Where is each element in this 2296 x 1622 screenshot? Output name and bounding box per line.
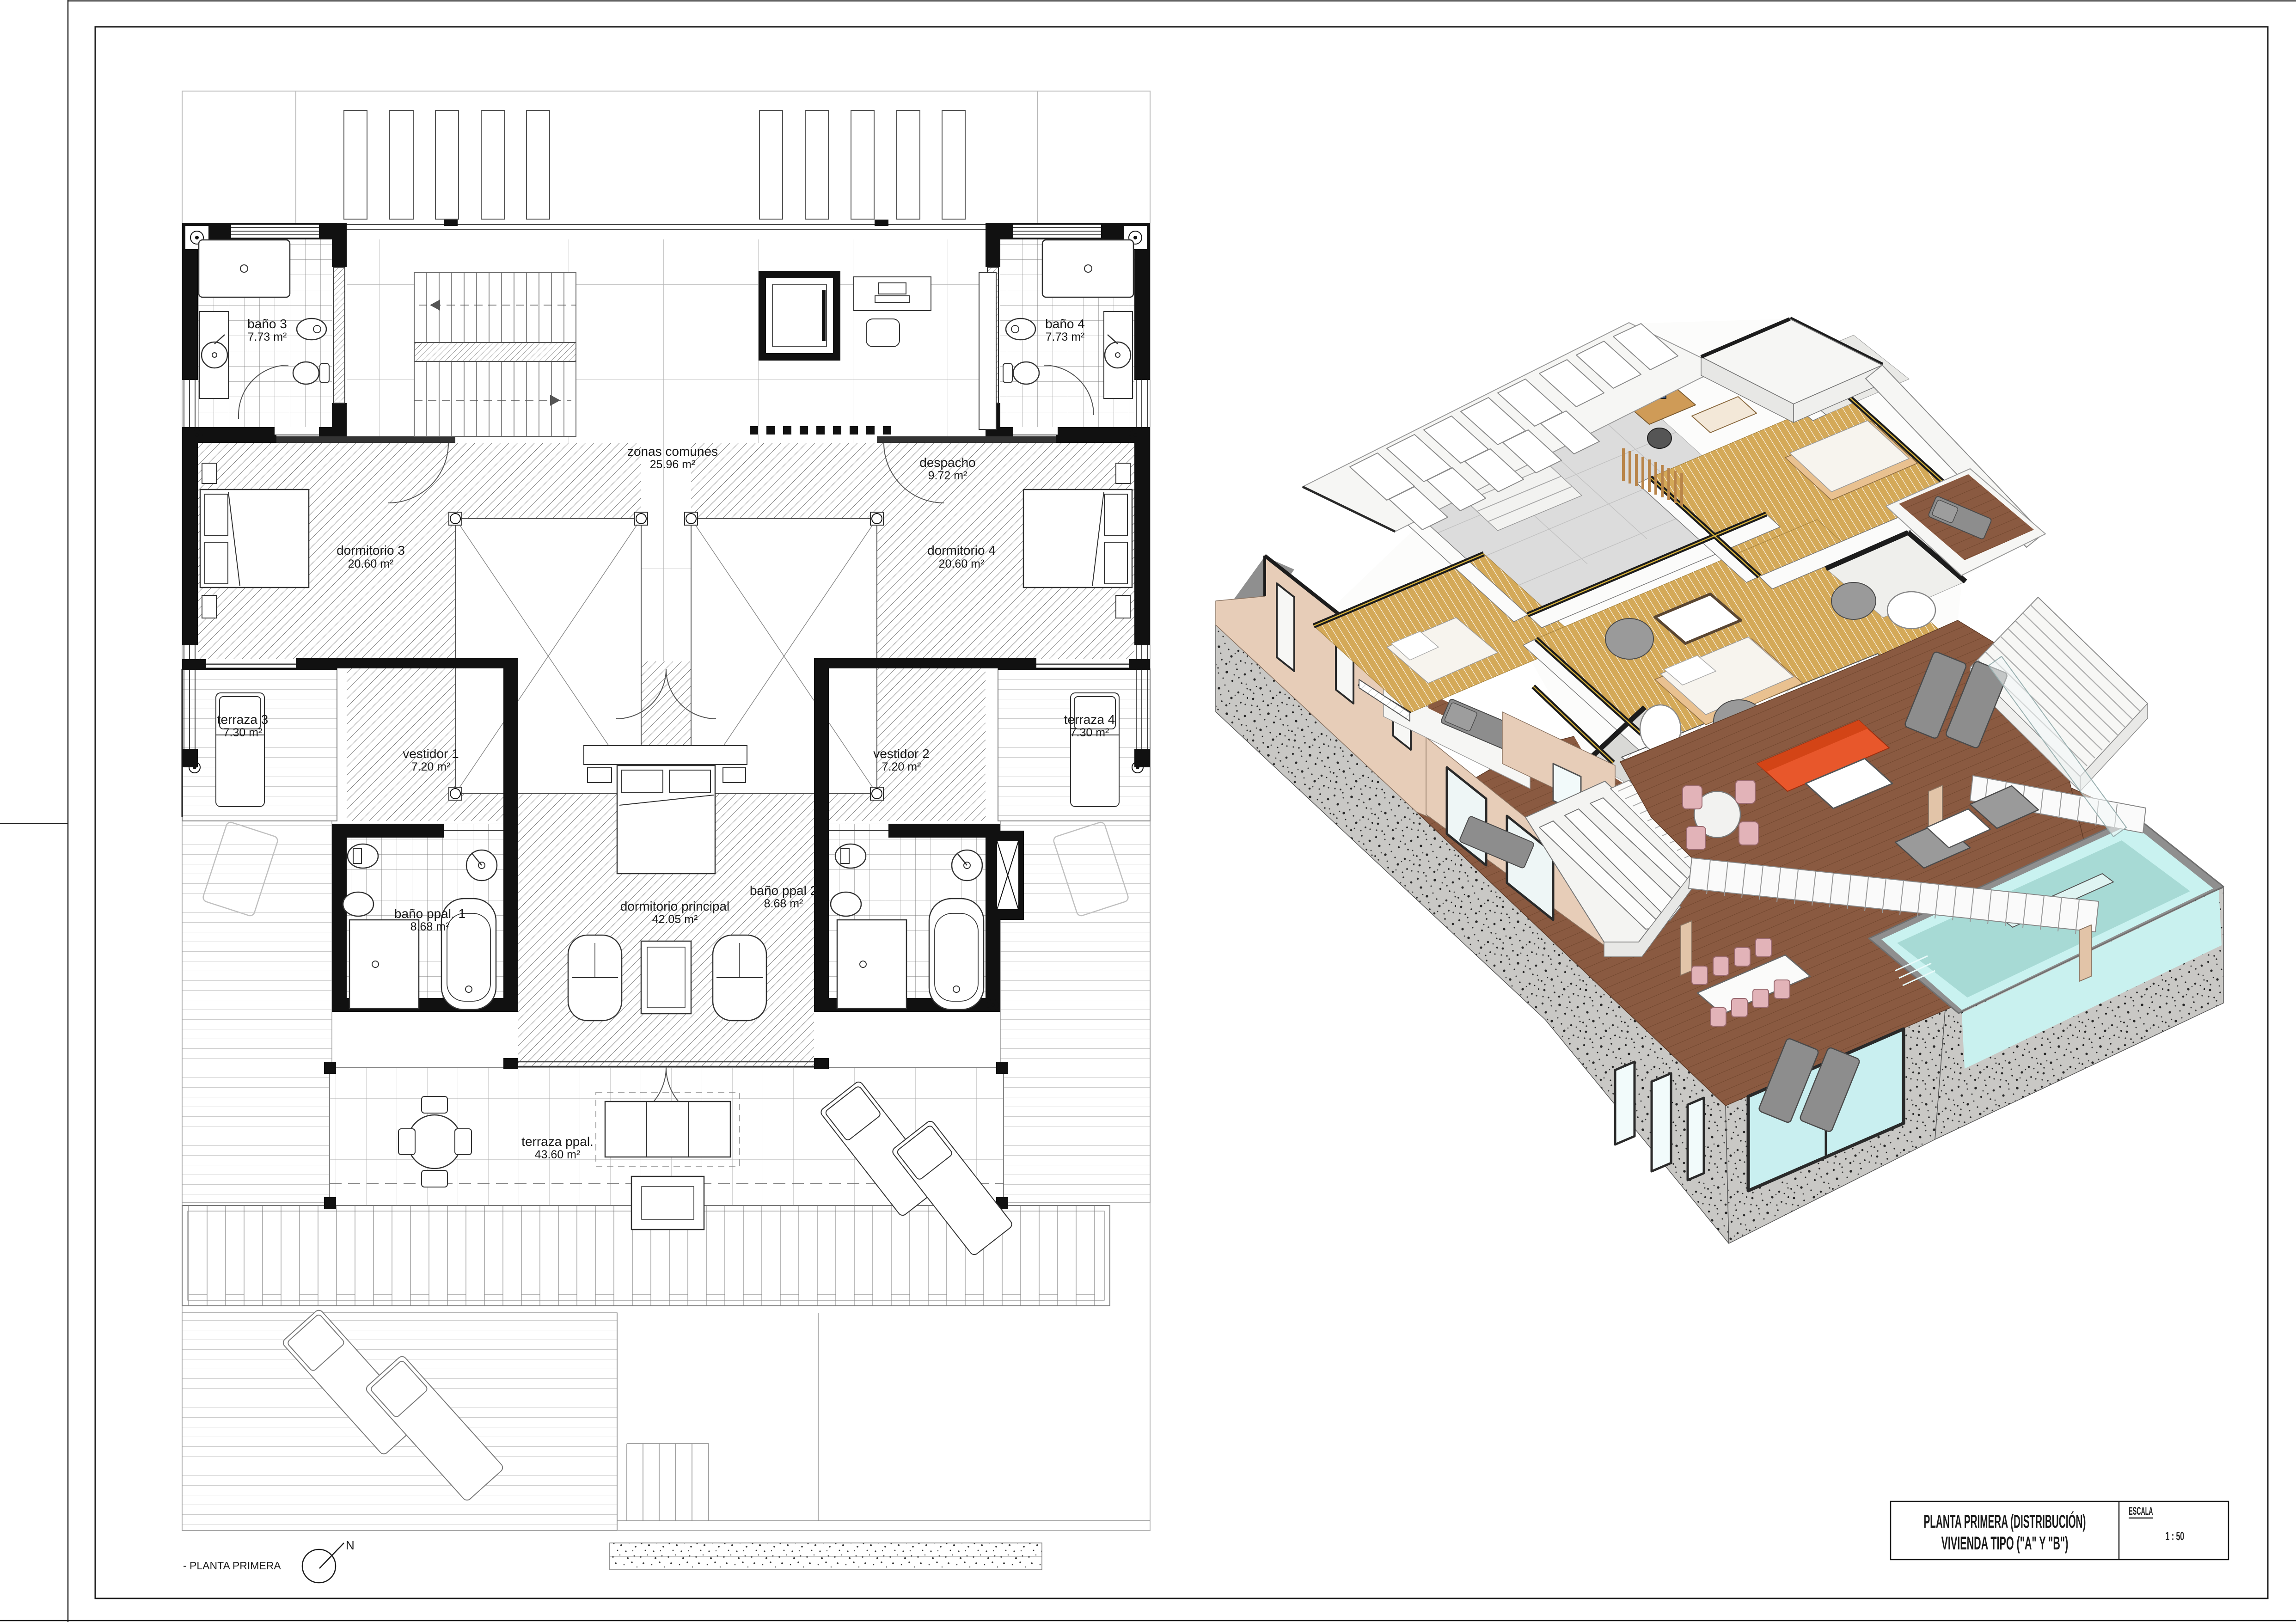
svg-text:9.72 m²: 9.72 m² [928, 469, 967, 482]
svg-text:ESCALA: ESCALA [2129, 1506, 2153, 1518]
svg-text:terraza 4: terraza 4 [1064, 712, 1115, 727]
svg-text:7.73 m²: 7.73 m² [248, 331, 287, 343]
svg-text:7.20 m²: 7.20 m² [411, 760, 451, 773]
svg-text:terraza ppal.: terraza ppal. [521, 1134, 594, 1149]
svg-text:20.60 m²: 20.60 m² [939, 557, 985, 570]
svg-text:7.30 m²: 7.30 m² [1070, 726, 1109, 739]
svg-text:7.20 m²: 7.20 m² [882, 760, 921, 773]
svg-text:7.30 m²: 7.30 m² [223, 726, 263, 739]
svg-text:baño 3: baño 3 [247, 317, 287, 331]
svg-text:zonas comunes: zonas comunes [627, 444, 718, 459]
svg-text:vestidor 1: vestidor 1 [403, 747, 459, 761]
svg-text:baño ppal. 1: baño ppal. 1 [394, 906, 465, 921]
svg-text:8.68 m²: 8.68 m² [764, 897, 803, 910]
svg-text:42.05 m²: 42.05 m² [652, 913, 698, 926]
svg-text:VIVIENDA TIPO ("A" Y "B"): VIVIENDA TIPO ("A" Y "B") [1941, 1533, 2069, 1554]
svg-text:terraza 3: terraza 3 [217, 712, 269, 727]
svg-text:20.60 m²: 20.60 m² [348, 557, 394, 570]
svg-text:43.60 m²: 43.60 m² [535, 1148, 581, 1161]
svg-text:- PLANTA PRIMERA: - PLANTA PRIMERA [183, 1560, 281, 1572]
svg-text:N: N [346, 1538, 355, 1552]
svg-text:25.96 m²: 25.96 m² [650, 458, 696, 471]
svg-text:dormitorio 4: dormitorio 4 [927, 543, 996, 557]
svg-text:7.73 m²: 7.73 m² [1046, 331, 1085, 343]
svg-text:baño 4: baño 4 [1045, 317, 1085, 331]
svg-text:PLANTA PRIMERA (DISTRIBUCIÓN): PLANTA PRIMERA (DISTRIBUCIÓN) [1923, 1511, 2086, 1532]
svg-text:baño ppal 2: baño ppal 2 [750, 883, 817, 898]
svg-text:8.68 m²: 8.68 m² [410, 920, 450, 933]
svg-text:1 : 50: 1 : 50 [2166, 1529, 2184, 1543]
svg-text:despacho: despacho [919, 455, 975, 470]
svg-text:dormitorio principal: dormitorio principal [620, 899, 730, 913]
svg-text:vestidor 2: vestidor 2 [873, 747, 929, 761]
svg-text:dormitorio 3: dormitorio 3 [337, 543, 405, 557]
